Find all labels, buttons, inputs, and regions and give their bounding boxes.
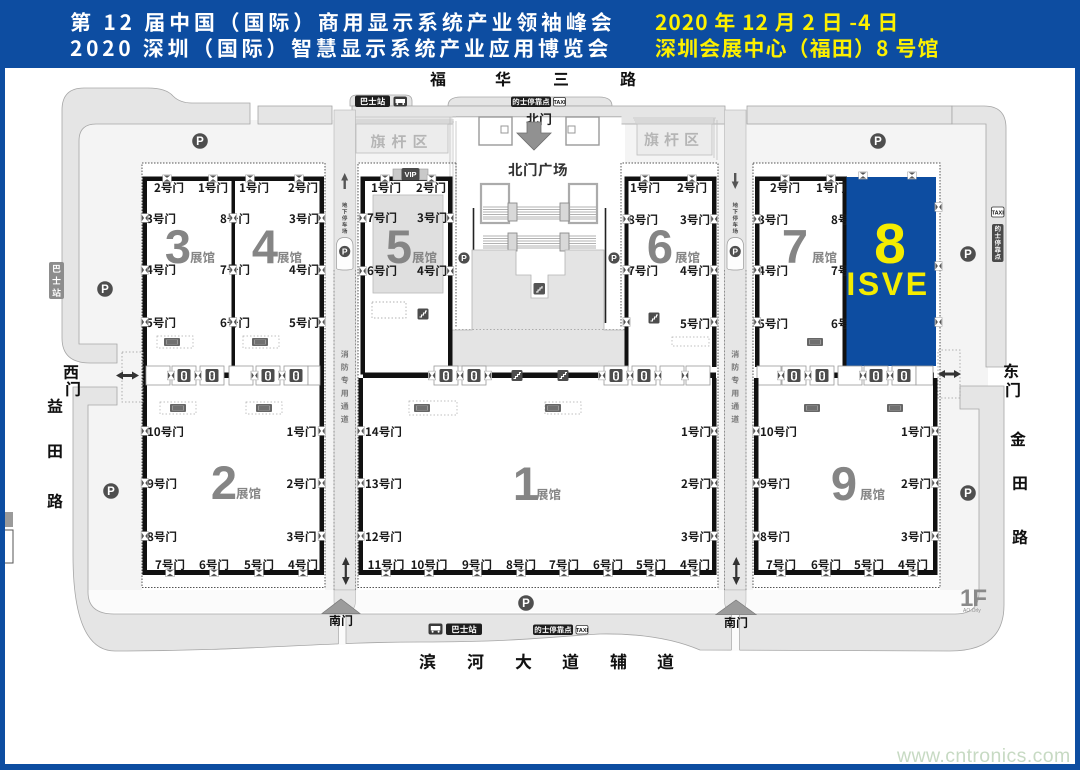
svg-text:7: 7 — [782, 220, 808, 273]
svg-text:VIP: VIP — [404, 170, 416, 179]
svg-text:www.cntronics.com: www.cntronics.com — [896, 745, 1071, 767]
svg-text:TAXI: TAXI — [553, 100, 566, 106]
svg-text:TAXI: TAXI — [576, 628, 589, 634]
svg-text:4: 4 — [252, 220, 278, 273]
svg-text:TAXI: TAXI — [992, 211, 1005, 217]
svg-text:1: 1 — [513, 457, 539, 510]
svg-text:6: 6 — [647, 220, 673, 273]
svg-text:5: 5 — [386, 220, 412, 273]
svg-text:ISVE: ISVE — [846, 266, 929, 302]
svg-text:9: 9 — [831, 457, 857, 510]
svg-text:2: 2 — [211, 456, 237, 509]
svg-text:AO.Orly: AO.Orly — [963, 608, 981, 614]
